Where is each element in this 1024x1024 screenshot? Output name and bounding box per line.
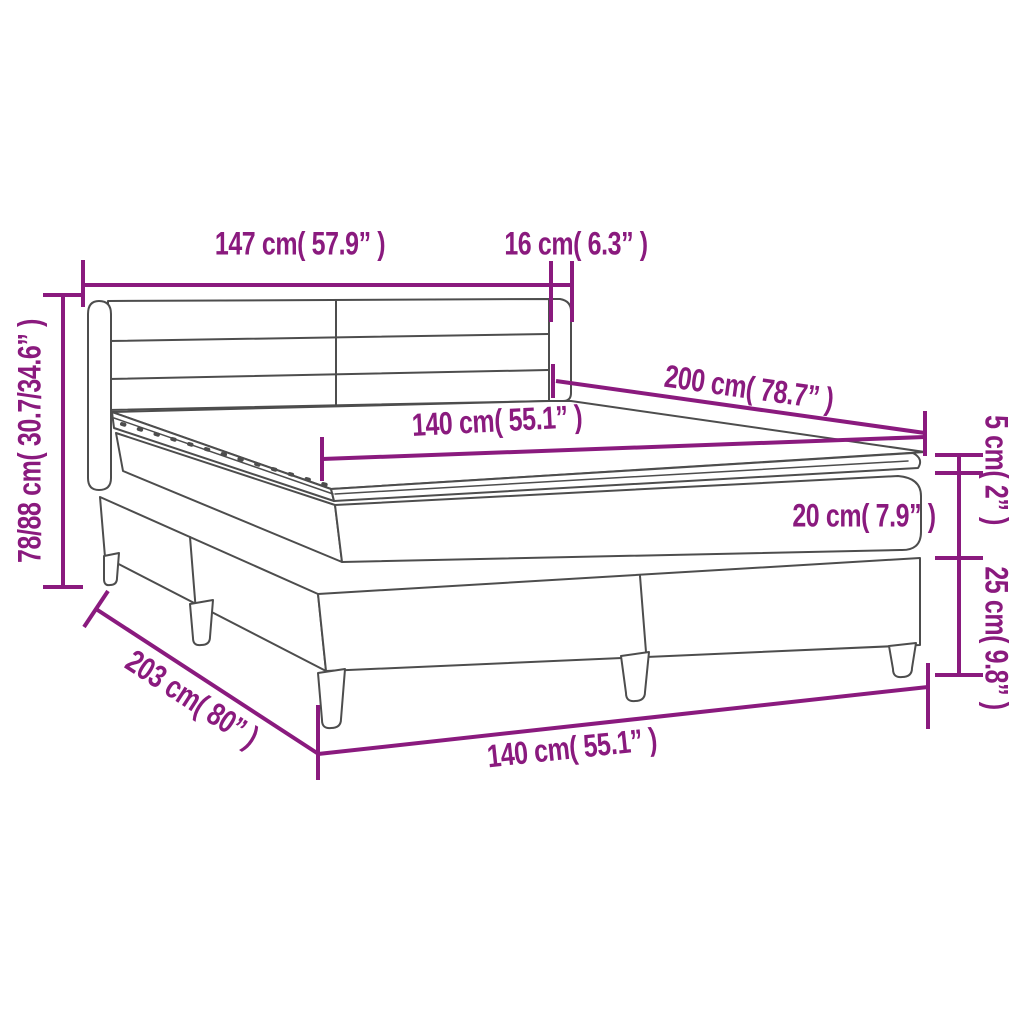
dim-label-height-range: 78/88 cm( 30.7/34.6” ) — [12, 319, 49, 563]
headboard-left-wing — [88, 301, 111, 490]
bed-leg — [104, 553, 119, 585]
dim-tick — [84, 591, 108, 627]
dim-label-headboard-width: 147 cm( 57.9” ) — [215, 226, 385, 263]
dim-label-mattress-thickness: 20 cm( 7.9” ) — [792, 498, 935, 535]
bed-leg — [190, 600, 213, 645]
bed-leg — [621, 652, 649, 701]
dim-label-base-height: 25 cm( 9.8” ) — [978, 566, 1015, 709]
dim-label-topper-thickness: 5 cm( 2” ) — [978, 415, 1015, 525]
bed-leg — [889, 643, 916, 677]
headboard-face — [108, 299, 549, 410]
bed-leg — [318, 669, 345, 728]
base-foot-face — [318, 558, 920, 671]
dim-label-headboard-wing-depth: 16 cm( 6.3” ) — [504, 226, 647, 263]
dimension-diagram: 147 cm( 57.9” ) 16 cm( 6.3” ) 78/88 cm( … — [0, 0, 1024, 1024]
